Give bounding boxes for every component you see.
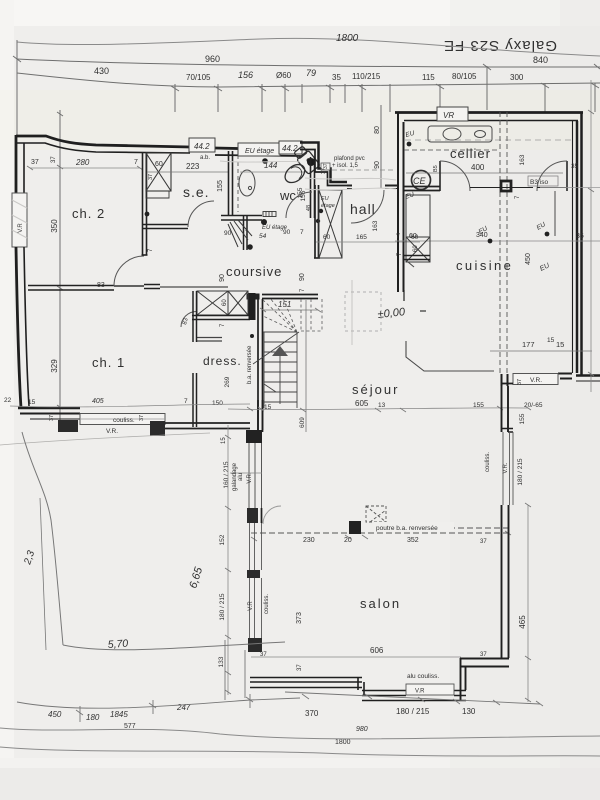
svg-text:V.R: V.R (415, 689, 425, 695)
svg-text:180 / 215: 180 / 215 (219, 593, 226, 620)
svg-text:couliss.: couliss. (113, 417, 135, 424)
svg-text:163: 163 (519, 154, 526, 165)
svg-text:coursive: coursive (226, 264, 282, 279)
svg-text:37: 37 (148, 174, 154, 180)
svg-text:980: 980 (356, 726, 368, 733)
svg-text:400: 400 (471, 163, 485, 172)
svg-text:salon: salon (360, 596, 401, 611)
svg-text:37: 37 (51, 156, 57, 163)
svg-text:430: 430 (94, 66, 109, 76)
svg-text:15: 15 (221, 437, 227, 444)
svg-text:79: 79 (306, 68, 316, 78)
svg-text:180: 180 (86, 713, 100, 722)
svg-text:15: 15 (28, 399, 36, 406)
svg-text:alu couliss.: alu couliss. (407, 673, 439, 680)
svg-text:wc: wc (279, 188, 296, 203)
svg-text:37: 37 (517, 379, 523, 385)
svg-text:155: 155 (297, 187, 304, 198)
svg-text:7: 7 (396, 233, 400, 240)
svg-text:poutre b.a. renversée: poutre b.a. renversée (376, 525, 438, 532)
svg-text:90: 90 (219, 274, 226, 282)
svg-text:37: 37 (297, 664, 303, 671)
svg-text:1800: 1800 (336, 33, 359, 44)
svg-text:15: 15 (264, 404, 272, 411)
svg-text:465: 465 (518, 615, 527, 629)
svg-text:90: 90 (224, 230, 232, 237)
svg-text:300: 300 (510, 73, 524, 82)
svg-text:V.R.: V.R. (247, 472, 253, 483)
svg-text:EU étage: EU étage (262, 225, 288, 231)
svg-text:7: 7 (245, 230, 249, 237)
svg-text:b.a. renversée: b.a. renversée (247, 345, 253, 384)
svg-text:37: 37 (49, 415, 55, 421)
svg-text:269: 269 (224, 376, 231, 387)
svg-text:605: 605 (355, 399, 369, 408)
svg-text:V.R.: V.R. (530, 377, 542, 384)
svg-text:373: 373 (296, 612, 303, 624)
svg-text:ch. 2: ch. 2 (72, 206, 105, 221)
svg-text:5,70: 5,70 (107, 638, 128, 651)
svg-text:155: 155 (519, 413, 526, 424)
svg-text:60: 60 (323, 234, 331, 241)
svg-text:hall: hall (350, 201, 376, 217)
svg-text:plafond pvc: plafond pvc (334, 156, 365, 162)
svg-text:450: 450 (48, 710, 62, 719)
svg-text:90: 90 (374, 161, 381, 169)
svg-text:EU: EU (321, 196, 329, 202)
svg-text:840: 840 (533, 55, 548, 65)
svg-text:115: 115 (422, 73, 435, 82)
svg-text:350: 350 (50, 219, 59, 233)
svg-text:130: 130 (462, 707, 476, 716)
svg-text:70/105: 70/105 (186, 73, 211, 82)
svg-text:cuisine: cuisine (456, 258, 513, 273)
svg-text:B5: B5 (433, 165, 439, 172)
svg-text:35: 35 (332, 73, 341, 82)
svg-text:180 / 215: 180 / 215 (517, 458, 524, 485)
svg-text:165: 165 (356, 234, 367, 241)
svg-text:V.R: V.R (248, 601, 254, 611)
svg-text:V.R: V.R (18, 223, 24, 233)
svg-text:cellier: cellier (450, 146, 491, 161)
svg-text:20/-65: 20/-65 (524, 402, 543, 409)
svg-text:37: 37 (321, 168, 327, 174)
svg-text:V.R.: V.R. (106, 428, 118, 435)
svg-text:180 / 215: 180 / 215 (396, 707, 430, 716)
svg-text:VR: VR (443, 111, 454, 120)
svg-text:7: 7 (300, 229, 304, 236)
svg-text:110/215: 110/215 (352, 72, 381, 81)
svg-text:80/105: 80/105 (452, 72, 477, 81)
svg-text:15: 15 (547, 337, 555, 344)
svg-text:CE: CE (413, 176, 426, 186)
svg-text:35: 35 (571, 163, 579, 170)
svg-text:37: 37 (480, 652, 487, 658)
svg-text:230: 230 (303, 537, 315, 544)
svg-text:1800: 1800 (335, 739, 351, 746)
svg-text:V.R.: V.R. (503, 462, 509, 473)
svg-text:Ø60: Ø60 (276, 71, 292, 80)
svg-text:7: 7 (134, 159, 138, 166)
svg-text:alu: alu (238, 473, 244, 481)
svg-text:90: 90 (299, 273, 306, 281)
svg-text:405: 405 (92, 398, 104, 405)
svg-text:séjour: séjour (352, 382, 399, 397)
svg-text:7: 7 (184, 398, 188, 405)
svg-text:couliss.: couliss. (485, 452, 491, 472)
svg-text:44.2: 44.2 (194, 142, 210, 151)
svg-text:609: 609 (299, 417, 306, 428)
svg-text:606: 606 (370, 646, 384, 655)
svg-text:223: 223 (186, 162, 200, 171)
svg-text:329: 329 (50, 359, 59, 373)
svg-text:+ isol. 1,5: + isol. 1,5 (332, 163, 359, 169)
svg-text:152: 152 (219, 534, 226, 545)
svg-text:150: 150 (212, 400, 223, 407)
svg-text:22: 22 (4, 397, 12, 404)
svg-text:450: 450 (525, 253, 532, 265)
svg-text:s.e.: s.e. (183, 184, 210, 200)
svg-text:155: 155 (473, 402, 484, 409)
svg-text:35: 35 (576, 233, 584, 240)
svg-text:160 / 215: 160 / 215 (223, 461, 230, 488)
svg-text:280: 280 (75, 158, 90, 167)
svg-text:37: 37 (31, 159, 39, 166)
svg-text:Galaxy S23 FE: Galaxy S23 FE (443, 37, 557, 54)
svg-text:155: 155 (217, 180, 224, 192)
svg-text:dress.: dress. (203, 354, 242, 368)
svg-text:ch. 1: ch. 1 (92, 355, 125, 370)
svg-text:60: 60 (413, 245, 419, 252)
svg-text:couliss.: couliss. (264, 594, 270, 614)
svg-text:144: 144 (264, 161, 278, 170)
svg-text:20: 20 (344, 537, 352, 544)
svg-text:37: 37 (480, 539, 487, 545)
svg-text:37: 37 (260, 652, 267, 658)
svg-text:60: 60 (222, 299, 228, 306)
svg-text:37: 37 (139, 415, 145, 421)
svg-text:133: 133 (218, 656, 225, 667)
svg-text:étage: étage (321, 203, 335, 209)
svg-text:B3 iso: B3 iso (530, 179, 548, 186)
svg-text:177: 177 (522, 340, 535, 349)
svg-text:163: 163 (372, 220, 379, 231)
svg-text:EU étage: EU étage (245, 148, 274, 155)
svg-text:352: 352 (407, 537, 419, 544)
svg-text:370: 370 (305, 709, 319, 718)
svg-text:960: 960 (205, 54, 220, 64)
svg-text:a.b.: a.b. (200, 155, 210, 161)
svg-text:15: 15 (556, 340, 564, 349)
svg-text:13: 13 (378, 402, 386, 409)
svg-text:156: 156 (238, 70, 253, 80)
svg-text:83: 83 (97, 282, 105, 289)
svg-text:60: 60 (155, 161, 163, 168)
svg-text:54: 54 (259, 233, 267, 240)
svg-text:80: 80 (374, 126, 381, 134)
svg-text:1845: 1845 (110, 710, 128, 719)
